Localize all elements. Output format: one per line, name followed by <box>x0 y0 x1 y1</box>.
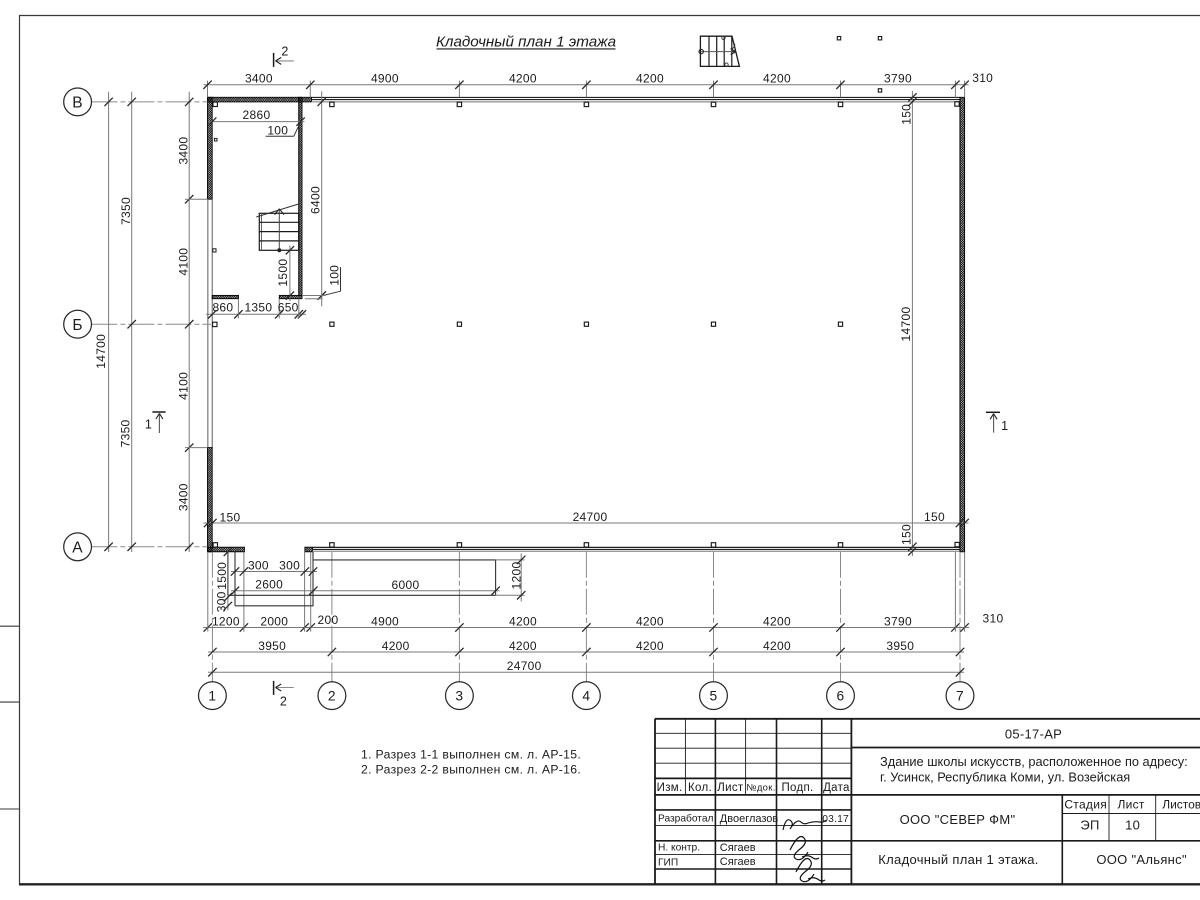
svg-text:Лист: Лист <box>1117 798 1144 812</box>
svg-text:Сягаев: Сягаев <box>720 842 756 854</box>
svg-text:200: 200 <box>318 613 339 627</box>
svg-text:Н. контр.: Н. контр. <box>658 843 700 854</box>
svg-text:05-17-АР: 05-17-АР <box>1005 727 1062 742</box>
svg-text:6000: 6000 <box>392 578 420 592</box>
svg-text:4200: 4200 <box>509 639 537 653</box>
svg-text:Кол.: Кол. <box>688 782 712 794</box>
svg-text:4200: 4200 <box>636 72 664 86</box>
svg-text:2600: 2600 <box>255 578 283 592</box>
svg-text:ЭП: ЭП <box>1080 818 1099 833</box>
svg-text:1350: 1350 <box>244 301 272 315</box>
svg-text:4200: 4200 <box>509 615 537 629</box>
svg-text:5: 5 <box>710 689 718 704</box>
svg-text:Здание школы искусств, располо: Здание школы искусств, расположенное по … <box>880 754 1188 769</box>
svg-text:4200: 4200 <box>763 615 791 629</box>
svg-text:Б: Б <box>72 317 82 334</box>
svg-text:ГИП: ГИП <box>658 857 678 868</box>
svg-text:4900: 4900 <box>371 72 399 86</box>
svg-text:4200: 4200 <box>763 639 791 653</box>
svg-text:Дата: Дата <box>823 782 850 794</box>
svg-text:24700: 24700 <box>507 659 542 673</box>
svg-text:№док.: №док. <box>746 782 775 793</box>
svg-text:310: 310 <box>983 612 1004 626</box>
svg-text:3400: 3400 <box>177 137 191 165</box>
svg-text:1. Разрез 1-1 выполнен см. л.: 1. Разрез 1-1 выполнен см. л. АР-15. <box>361 748 581 762</box>
svg-text:3400: 3400 <box>177 483 191 511</box>
svg-text:14700: 14700 <box>899 307 913 342</box>
svg-text:24700: 24700 <box>573 510 608 524</box>
svg-text:10: 10 <box>1125 818 1140 833</box>
svg-text:3950: 3950 <box>886 639 914 653</box>
svg-text:Подп.: Подп. <box>781 782 813 794</box>
svg-text:100: 100 <box>327 265 341 286</box>
svg-text:300: 300 <box>248 558 269 572</box>
svg-text:300: 300 <box>214 591 228 612</box>
svg-text:г. Усинск, Республика Коми, ул: г. Усинск, Республика Коми, ул. Возейска… <box>880 769 1130 784</box>
svg-text:Лист: Лист <box>717 782 744 794</box>
svg-text:ООО "СЕВЕР ФМ": ООО "СЕВЕР ФМ" <box>900 812 1016 827</box>
svg-text:3: 3 <box>455 689 463 704</box>
svg-text:7: 7 <box>956 689 964 704</box>
svg-text:4200: 4200 <box>509 72 537 86</box>
svg-text:Листов: Листов <box>1162 798 1200 812</box>
svg-text:650: 650 <box>278 301 299 315</box>
svg-text:860: 860 <box>212 301 233 315</box>
svg-text:3950: 3950 <box>258 639 286 653</box>
svg-text:300: 300 <box>279 558 300 572</box>
svg-text:4200: 4200 <box>763 72 791 86</box>
svg-text:6: 6 <box>837 689 845 704</box>
svg-text:Кладочный план 1 этажа.: Кладочный план 1 этажа. <box>878 852 1038 867</box>
svg-text:Кладочный план 1 этажа: Кладочный план 1 этажа <box>436 33 616 50</box>
svg-text:100: 100 <box>267 124 288 138</box>
svg-text:4900: 4900 <box>371 615 399 629</box>
svg-text:ООО "Альянс": ООО "Альянс" <box>1096 852 1187 867</box>
svg-text:310: 310 <box>972 71 993 85</box>
svg-text:2: 2 <box>281 45 288 59</box>
svg-text:1: 1 <box>145 418 152 432</box>
svg-text:2. Разрез 2-2 выполнен см. л.: 2. Разрез 2-2 выполнен см. л. АР-16. <box>361 763 581 777</box>
svg-text:2: 2 <box>328 689 336 704</box>
svg-text:1: 1 <box>1001 419 1008 433</box>
svg-text:Изм.: Изм. <box>657 782 683 794</box>
svg-text:14700: 14700 <box>94 334 108 369</box>
svg-text:4200: 4200 <box>636 615 664 629</box>
svg-text:Разработал: Разработал <box>658 813 714 825</box>
svg-text:1200: 1200 <box>510 562 524 590</box>
svg-text:1: 1 <box>208 689 216 704</box>
svg-text:7350: 7350 <box>119 197 133 225</box>
svg-text:4: 4 <box>582 689 590 704</box>
svg-text:3400: 3400 <box>245 72 273 86</box>
svg-text:4100: 4100 <box>177 248 191 276</box>
svg-text:3790: 3790 <box>884 72 912 86</box>
svg-text:4200: 4200 <box>636 639 664 653</box>
svg-text:2: 2 <box>280 695 287 709</box>
svg-text:150: 150 <box>924 510 945 524</box>
svg-text:А: А <box>72 539 83 556</box>
svg-text:1500: 1500 <box>215 562 229 590</box>
svg-text:150: 150 <box>900 104 914 125</box>
svg-text:1500: 1500 <box>276 259 290 287</box>
svg-text:03.17: 03.17 <box>822 814 849 825</box>
svg-text:4200: 4200 <box>382 639 410 653</box>
svg-text:Сягаев: Сягаев <box>720 856 756 868</box>
svg-text:7350: 7350 <box>119 419 133 447</box>
svg-text:2860: 2860 <box>243 108 271 122</box>
svg-text:Стадия: Стадия <box>1064 798 1107 812</box>
svg-text:6400: 6400 <box>308 186 322 214</box>
svg-text:150: 150 <box>900 524 914 545</box>
svg-text:1200: 1200 <box>212 615 240 629</box>
svg-text:150: 150 <box>220 511 241 525</box>
svg-text:Двоеглазов: Двоеглазов <box>720 813 779 825</box>
svg-text:3790: 3790 <box>884 615 912 629</box>
svg-text:В: В <box>72 95 83 112</box>
svg-text:4100: 4100 <box>177 372 191 400</box>
svg-text:2000: 2000 <box>260 615 288 629</box>
